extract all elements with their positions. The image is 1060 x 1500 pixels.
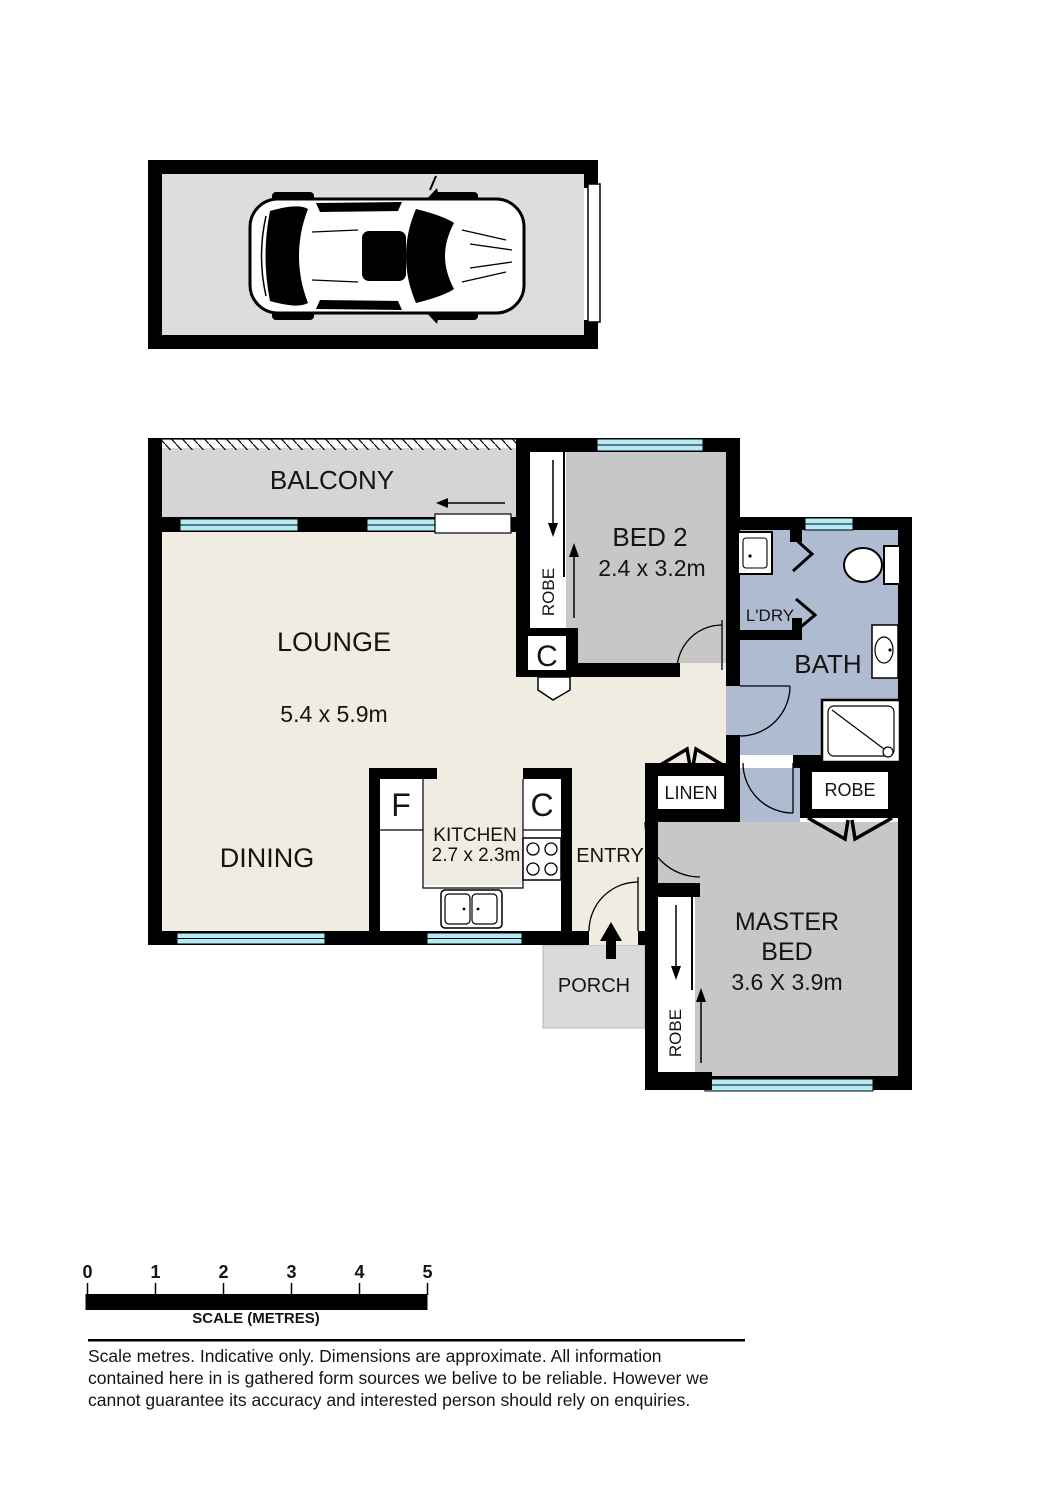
scale-bar: 0 1 2 3 4 5 SCALE (METRES) [82,1262,432,1327]
entry-label: ENTRY [576,845,643,867]
master-label-line2: BED [761,938,812,966]
kitchen-sink-icon [441,890,502,928]
scale-tick-2: 2 [218,1262,228,1282]
porch-label: PORCH [558,975,630,997]
wall-kitchen-right [561,768,572,931]
wall-outer-right [898,517,912,1090]
scale-tick-3: 3 [286,1262,296,1282]
scale-bar-label: SCALE (METRES) [192,1310,320,1327]
master-robe-label: ROBE [666,1009,685,1057]
window-master [705,1079,873,1091]
bed2-dims: 2.4 x 3.2m [598,555,705,581]
cooktop-icon [523,838,561,880]
balcony-rail [162,438,518,450]
floor-plan-page: BALCONY LOUNGE 5.4 x 5.9m DINING BED 2 2… [0,0,1060,1500]
disclaimer-line2: contained here in is gathered form sourc… [88,1368,709,1388]
master-dims: 3.6 X 3.9m [731,969,842,995]
master-door-nook [740,768,800,822]
scale-bar-rule [86,1295,428,1310]
vanity-basin-icon [872,625,898,678]
garage-door [588,184,600,322]
divider [88,1339,745,1342]
wall-kitchen-left [369,768,380,931]
balcony-label: BALCONY [270,465,394,495]
hall-cupboard-label: C [536,640,558,673]
bed2-robe-label: ROBE [539,568,558,616]
window-bed2 [597,439,703,451]
disclaimer-line3: cannot guarantee its accuracy and intere… [88,1390,690,1410]
garage-wall-left [148,160,162,349]
car-icon [250,176,524,324]
wall-master-left [645,822,658,1090]
dining-label: DINING [220,843,315,873]
master-label-line1: MASTER [735,908,839,936]
bath-label: BATH [794,649,861,679]
shower-icon [822,700,900,762]
disclaimer-line1: Scale metres. Indicative only. Dimension… [88,1346,662,1366]
wall-outer-left [148,438,162,945]
kitchen-dims: 2.7 x 2.3m [432,845,521,866]
window-balcony-1 [180,519,298,531]
floor-plan-canvas: BALCONY LOUNGE 5.4 x 5.9m DINING BED 2 2… [0,0,1060,1500]
garage-wall-top [148,160,598,174]
scale-tick-5: 5 [422,1262,432,1282]
bath-robe-label: ROBE [824,780,875,800]
linen-label: LINEN [664,783,717,803]
fridge-label: F [391,787,411,823]
bed2-label: BED 2 [612,522,687,552]
kitchen-cupboard-label: C [530,787,553,823]
lounge-dims: 5.4 x 5.9m [280,701,387,727]
scale-tick-0: 0 [82,1262,92,1282]
garage [148,160,600,349]
window-dining [177,933,325,944]
garage-wall-right-bottom [584,320,598,349]
window-balcony-2 [367,519,435,531]
window-bath [805,518,853,530]
laundry-tub-icon [738,532,772,574]
lounge-label: LOUNGE [277,627,391,657]
toilet-icon [844,546,900,584]
scale-tick-1: 1 [150,1262,160,1282]
garage-wall-bottom [148,335,598,349]
kitchen-label: KITCHEN [433,825,516,846]
laundry-label: L'DRY [746,606,794,625]
window-kitchen [427,933,522,944]
scale-tick-4: 4 [354,1262,364,1282]
balcony-slider-door [435,498,511,533]
disclaimer: Scale metres. Indicative only. Dimension… [88,1339,745,1410]
